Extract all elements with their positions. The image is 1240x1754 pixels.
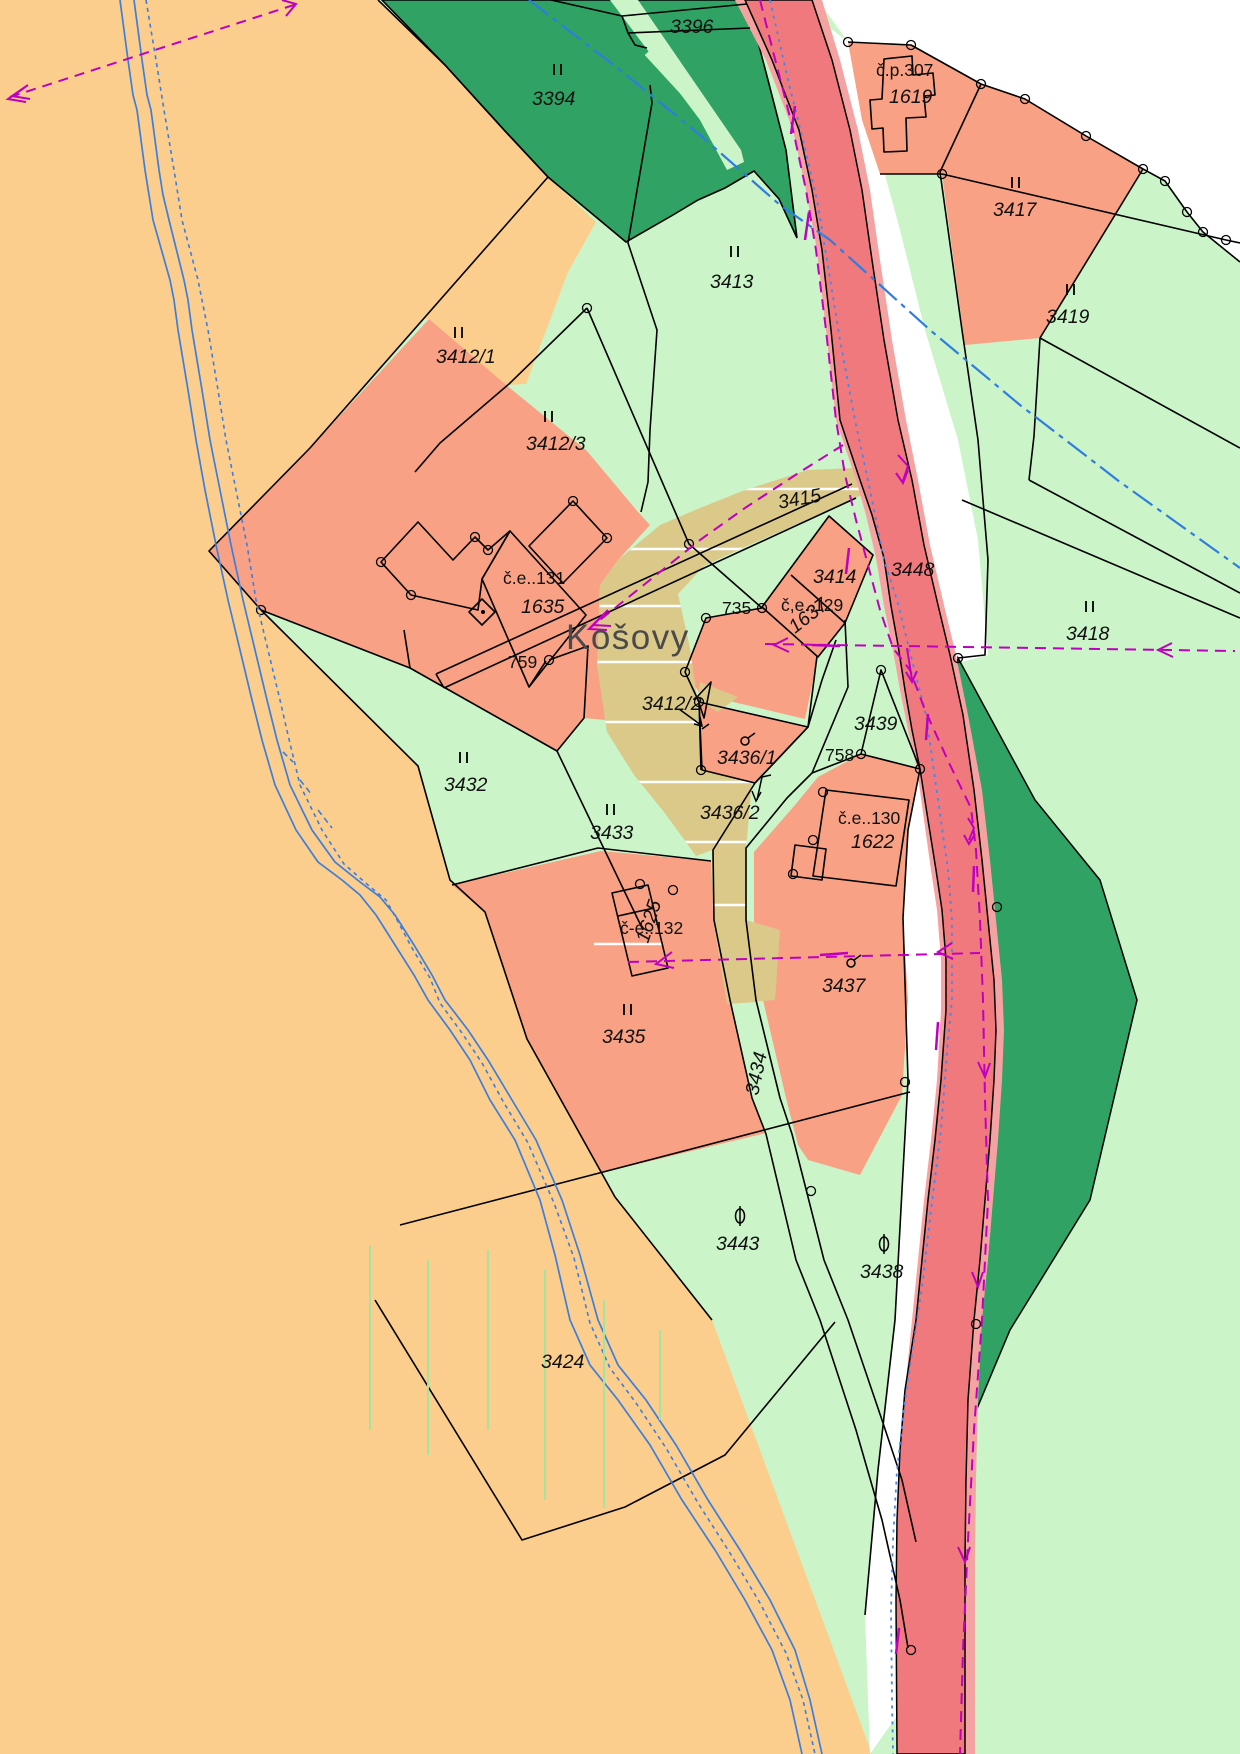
svg-text:3437: 3437 <box>822 975 867 997</box>
svg-text:3414: 3414 <box>813 566 857 588</box>
svg-text:3432: 3432 <box>444 774 488 796</box>
svg-text:3412/2: 3412/2 <box>642 693 702 715</box>
svg-text:3413: 3413 <box>710 271 754 293</box>
svg-text:3439: 3439 <box>854 713 898 735</box>
svg-text:759: 759 <box>508 652 537 672</box>
svg-text:Košovy: Košovy <box>566 618 690 657</box>
svg-text:č.e..131: č.e..131 <box>503 568 565 588</box>
svg-text:3417: 3417 <box>993 199 1038 221</box>
svg-text:3396: 3396 <box>670 16 714 38</box>
svg-text:3443: 3443 <box>716 1233 760 1255</box>
svg-text:3412/1: 3412/1 <box>436 346 496 368</box>
svg-text:735: 735 <box>722 598 751 618</box>
svg-text:3433: 3433 <box>590 822 634 844</box>
svg-text:3418: 3418 <box>1066 623 1110 645</box>
svg-text:1622: 1622 <box>851 831 895 853</box>
svg-text:3419: 3419 <box>1046 306 1090 328</box>
svg-text:758: 758 <box>825 745 854 765</box>
svg-text:3436/1: 3436/1 <box>717 747 777 769</box>
svg-text:1619: 1619 <box>889 86 933 108</box>
svg-text:3424: 3424 <box>541 1351 585 1373</box>
svg-text:3394: 3394 <box>532 88 576 110</box>
svg-text:č.e..130: č.e..130 <box>838 808 901 828</box>
svg-text:3438: 3438 <box>860 1261 904 1283</box>
svg-text:č.p.307: č.p.307 <box>876 60 933 80</box>
svg-text:3436/2: 3436/2 <box>700 802 760 824</box>
svg-text:3412/3: 3412/3 <box>526 433 586 455</box>
svg-text:3448: 3448 <box>891 559 935 581</box>
svg-text:1635: 1635 <box>521 596 565 618</box>
svg-text:3435: 3435 <box>602 1026 646 1048</box>
